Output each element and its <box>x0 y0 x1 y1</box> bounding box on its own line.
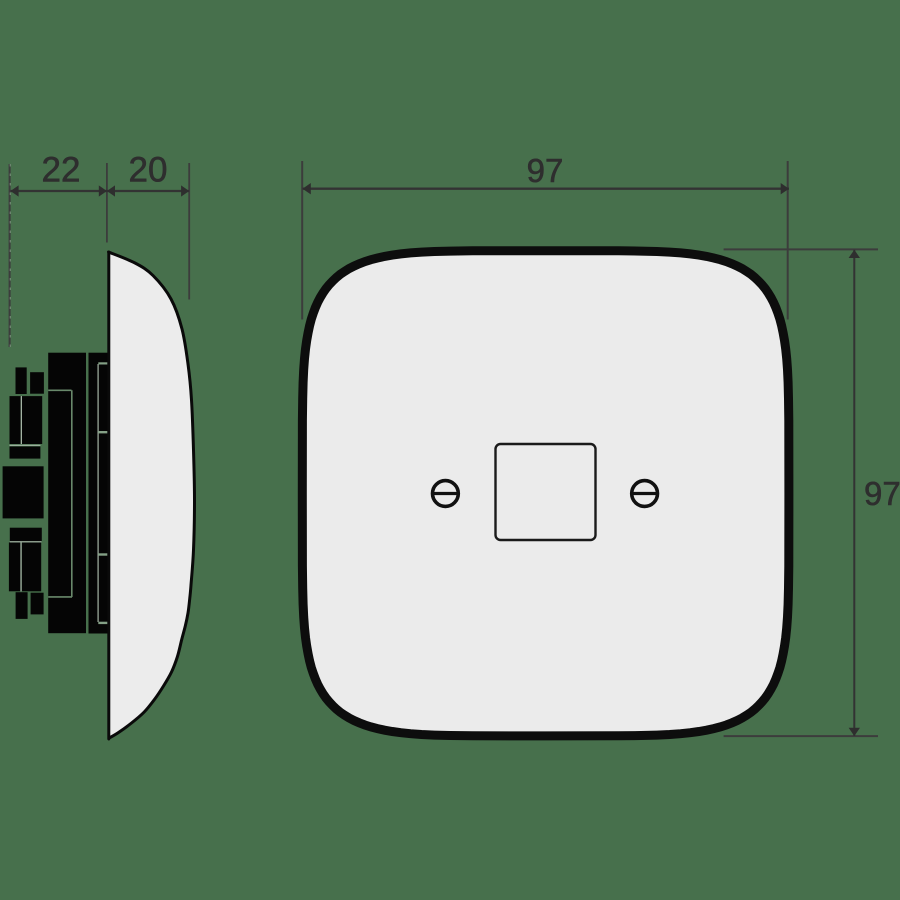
svg-text:97: 97 <box>864 475 900 512</box>
svg-text:20: 20 <box>129 151 168 190</box>
svg-text:97: 97 <box>527 152 564 189</box>
svg-text:22: 22 <box>42 151 81 190</box>
